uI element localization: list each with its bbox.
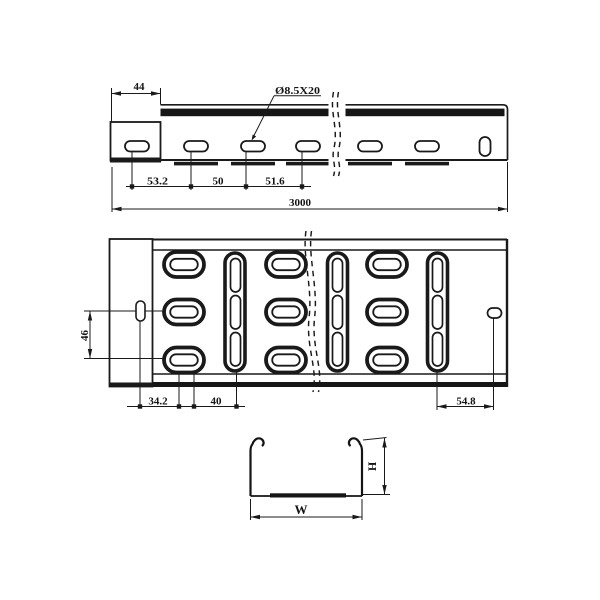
svg-text:54.8: 54.8 — [456, 396, 476, 408]
svg-text:H: H — [365, 461, 379, 471]
svg-text:51.6: 51.6 — [265, 176, 285, 188]
svg-text:50: 50 — [213, 176, 225, 188]
svg-text:40: 40 — [211, 396, 223, 408]
svg-text:46: 46 — [79, 330, 91, 342]
svg-text:44: 44 — [134, 81, 146, 93]
svg-text:3000: 3000 — [289, 197, 312, 209]
svg-text:W: W — [295, 502, 308, 517]
svg-text:34.2: 34.2 — [148, 396, 168, 408]
svg-text:53.2: 53.2 — [147, 176, 169, 188]
